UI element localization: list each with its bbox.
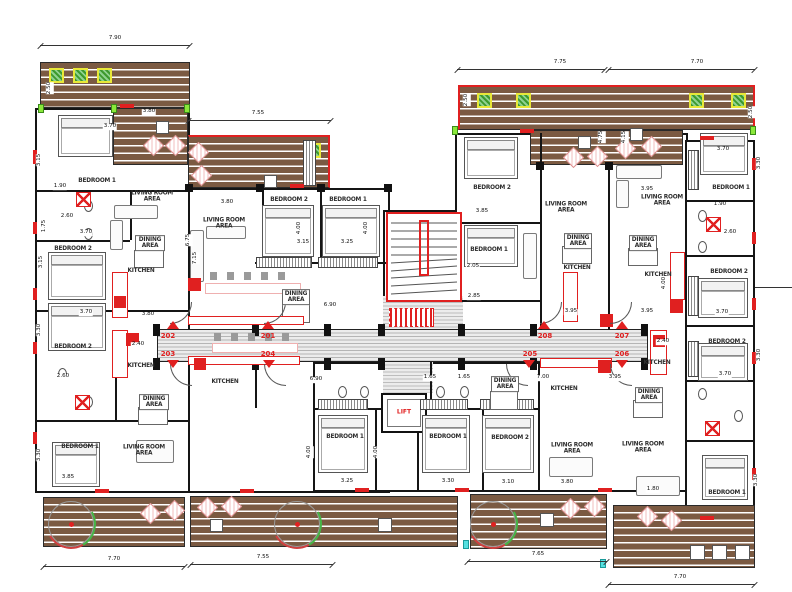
sofa bbox=[616, 165, 662, 179]
dim-label: 4.00 bbox=[306, 446, 314, 458]
bed bbox=[58, 115, 113, 157]
room-label-bedroom: BEDROOM 2 bbox=[491, 435, 529, 441]
dim-label: 3.10 bbox=[501, 480, 515, 486]
dim-label: 3.70 bbox=[718, 372, 732, 378]
dim-label: 4.15 bbox=[621, 131, 629, 143]
kitchen-sink bbox=[114, 296, 126, 308]
dim-label: 3.30 bbox=[36, 449, 44, 461]
dim-label: 2.50 bbox=[46, 82, 54, 94]
wardrobe bbox=[420, 399, 468, 410]
room-label-kitchen: KITCHEN bbox=[127, 363, 154, 369]
wardrobe bbox=[318, 399, 368, 410]
dim-label: 4.00 bbox=[296, 222, 304, 234]
extension-line bbox=[755, 287, 792, 288]
lift-label: LIFT bbox=[397, 409, 411, 416]
wall-pier bbox=[530, 324, 537, 336]
room-label-bedroom: BEDROOM 2 bbox=[270, 197, 308, 203]
wall-pier bbox=[256, 184, 264, 192]
staircase bbox=[386, 212, 462, 302]
kitchen-counter bbox=[670, 252, 685, 300]
dim-label: 2.60 bbox=[60, 214, 74, 220]
dim-label: 1.75 bbox=[41, 220, 49, 232]
window-marker bbox=[33, 432, 37, 444]
dim-label: 6.90 bbox=[323, 303, 337, 309]
dim-label: 7.70 bbox=[107, 557, 121, 563]
dim-label: 2.60 bbox=[56, 374, 70, 380]
room-label-bedroom: BEDROOM 2 bbox=[54, 344, 92, 350]
wall-pier bbox=[378, 358, 385, 370]
entry-marker bbox=[262, 321, 274, 329]
dim-label: 4.00 bbox=[373, 446, 381, 458]
room-label-kitchen: KITCHEN bbox=[211, 379, 238, 385]
planter-box bbox=[73, 68, 88, 83]
room-label-kitchen: KITCHEN bbox=[550, 386, 577, 392]
dim-label: 3.70 bbox=[103, 124, 117, 130]
dim-label: 3.85 bbox=[475, 209, 489, 215]
entry-marker bbox=[616, 321, 628, 329]
floor-plan: LIFT bbox=[0, 0, 792, 592]
sofa bbox=[549, 457, 593, 477]
room-label-living: LIVING ROOM AREA bbox=[121, 445, 167, 458]
planter-box bbox=[516, 93, 531, 108]
dim-label: 7.00 bbox=[536, 375, 550, 381]
dining-table bbox=[490, 391, 518, 410]
dim-label: 3.30 bbox=[756, 349, 764, 361]
staircase-steps bbox=[388, 214, 460, 300]
wall-pier bbox=[641, 324, 648, 336]
planter-box bbox=[49, 68, 64, 83]
room-label-bedroom: BEDROOM 2 bbox=[708, 339, 746, 345]
wall bbox=[455, 222, 540, 224]
dim-label: 6.90 bbox=[309, 377, 323, 383]
dim-label: 3.30 bbox=[753, 474, 761, 486]
deck-table bbox=[264, 175, 277, 188]
dim-label: 3.80 bbox=[141, 312, 155, 318]
dimension-line bbox=[608, 69, 755, 70]
planter-box bbox=[689, 93, 704, 108]
wall-pier bbox=[324, 358, 331, 370]
wardrobe bbox=[688, 150, 699, 190]
entry-marker bbox=[263, 360, 275, 368]
dim-label: 3.85 bbox=[61, 475, 75, 481]
window-marker bbox=[598, 488, 612, 492]
deck-table bbox=[690, 545, 705, 560]
kitchen-sink bbox=[194, 358, 206, 370]
dimension-line bbox=[40, 45, 190, 46]
dim-label: 4.00 bbox=[661, 277, 669, 289]
bed bbox=[318, 415, 368, 473]
wardrobe bbox=[256, 257, 312, 268]
wall bbox=[455, 300, 540, 302]
deck-table bbox=[210, 519, 223, 532]
sofa bbox=[114, 205, 158, 219]
window-marker bbox=[700, 136, 714, 140]
bed bbox=[422, 415, 470, 473]
room-label-living: LIVING ROOM AREA bbox=[199, 218, 249, 231]
window-marker bbox=[355, 488, 369, 492]
wall-pier bbox=[384, 184, 392, 192]
dim-label: 3.70 bbox=[79, 230, 93, 236]
dim-label: 3.15 bbox=[296, 240, 310, 246]
toilet bbox=[338, 386, 347, 398]
wall-pier bbox=[378, 324, 385, 336]
kitchen-sink bbox=[598, 360, 611, 373]
dim-label: 3.80 bbox=[560, 480, 574, 486]
unit-number: 205 bbox=[523, 350, 538, 358]
window-marker bbox=[33, 288, 37, 300]
unit-number: 201 bbox=[261, 332, 276, 340]
wardrobe bbox=[688, 276, 699, 316]
dim-label: 7.70 bbox=[673, 575, 687, 581]
dim-label: 3.30 bbox=[441, 479, 455, 485]
bed bbox=[464, 137, 518, 179]
kitchen-sink bbox=[670, 300, 683, 313]
wall-pier bbox=[605, 162, 613, 170]
room-label-bedroom: BEDROOM 1 bbox=[708, 490, 746, 496]
deck-table bbox=[578, 136, 591, 149]
shower-box bbox=[706, 217, 721, 232]
room-label-bedroom: BEDROOM 1 bbox=[326, 434, 364, 440]
dim-label: 7.75 bbox=[553, 60, 567, 66]
bar-stools bbox=[214, 333, 289, 341]
dim-label: 3.30 bbox=[756, 157, 764, 169]
tree bbox=[274, 501, 320, 547]
unit-number: 206 bbox=[615, 350, 630, 358]
dim-label: 3.70 bbox=[79, 310, 93, 316]
unit-number: 207 bbox=[615, 332, 630, 340]
dim-label: 2.50 bbox=[748, 106, 756, 118]
window-marker bbox=[700, 516, 714, 520]
deck-table bbox=[735, 545, 750, 560]
unit-number: 208 bbox=[538, 332, 553, 340]
dim-label: 3.95 bbox=[564, 309, 578, 315]
sofa bbox=[523, 233, 537, 279]
dim-label: 1.80 bbox=[646, 487, 660, 493]
room-label-dining: DINING AREA bbox=[635, 387, 663, 403]
dim-label: 3.95 bbox=[608, 375, 622, 381]
bar-stools bbox=[210, 272, 290, 280]
stair-entry-mat bbox=[389, 308, 434, 327]
deck-table bbox=[156, 121, 169, 134]
deck-marker bbox=[111, 104, 117, 113]
room-label-bedroom: BEDROOM 2 bbox=[54, 246, 92, 252]
window-marker bbox=[120, 104, 134, 108]
window-marker bbox=[752, 298, 756, 310]
dim-label: 4.75 bbox=[598, 131, 606, 143]
dim-label: 4.00 bbox=[363, 222, 371, 234]
dim-label: 3.80 bbox=[142, 109, 156, 115]
deck-table bbox=[712, 545, 727, 560]
wall-pier bbox=[153, 324, 160, 336]
unit-number: 202 bbox=[161, 332, 176, 340]
dim-label: 3.95 bbox=[640, 309, 654, 315]
dim-label: 3.70 bbox=[716, 147, 730, 153]
dim-label: 2.50 bbox=[463, 94, 471, 106]
shower-box bbox=[75, 395, 90, 410]
room-label-bedroom: BEDROOM 1 bbox=[470, 247, 508, 253]
deck-table bbox=[540, 513, 554, 527]
planter-box bbox=[97, 68, 112, 83]
room-label-bedroom: BEDROOM 1 bbox=[429, 434, 467, 440]
dim-label: 1.65 bbox=[423, 375, 437, 381]
deck-marker bbox=[38, 104, 44, 113]
dim-label: 7.70 bbox=[690, 60, 704, 66]
dimension-line bbox=[188, 120, 331, 121]
bed bbox=[262, 205, 314, 257]
bed bbox=[48, 252, 106, 300]
room-label-kitchen: KITCHEN bbox=[563, 265, 590, 271]
entry-marker bbox=[616, 360, 628, 368]
tree bbox=[48, 501, 94, 547]
room-label-bedroom: BEDROOM 2 bbox=[710, 269, 748, 275]
room-label-dining: DINING AREA bbox=[135, 235, 165, 251]
window-marker bbox=[520, 129, 534, 133]
dim-label: 3.80 bbox=[220, 200, 234, 206]
dim-label: 2.40 bbox=[656, 339, 670, 345]
kitchen-island bbox=[212, 343, 298, 353]
dim-label: 7.15 bbox=[192, 252, 200, 264]
deck-table bbox=[630, 128, 643, 141]
dim-label: 7.55 bbox=[251, 111, 265, 117]
toilet bbox=[734, 410, 743, 422]
kitchen-counter bbox=[112, 272, 128, 318]
deck-bottom-right bbox=[613, 505, 755, 568]
window-marker bbox=[95, 489, 109, 493]
wardrobe bbox=[303, 140, 316, 186]
dimension-line bbox=[457, 69, 605, 70]
bed bbox=[482, 415, 534, 473]
wall-pier bbox=[458, 358, 465, 370]
window-marker bbox=[752, 232, 756, 244]
unit-number: 203 bbox=[161, 350, 176, 358]
sofa bbox=[110, 220, 123, 250]
room-label-kitchen: KITCHEN bbox=[644, 272, 671, 278]
room-label-bedroom: BEDROOM 2 bbox=[473, 185, 511, 191]
room-label-dining: DINING AREA bbox=[564, 233, 592, 249]
room-label-living: LIVING ROOM AREA bbox=[639, 195, 685, 208]
dining-table bbox=[134, 250, 164, 268]
bed bbox=[322, 205, 380, 257]
room-label-bedroom: BEDROOM 1 bbox=[329, 197, 367, 203]
toilet bbox=[360, 386, 369, 398]
dimension-line bbox=[190, 564, 333, 565]
toilet bbox=[698, 241, 707, 253]
room-label-dining: DINING AREA bbox=[282, 289, 310, 305]
wall-pier bbox=[458, 324, 465, 336]
unit-number: 204 bbox=[261, 350, 276, 358]
planter-box bbox=[731, 93, 746, 108]
window-marker bbox=[240, 489, 254, 493]
entry-marker bbox=[167, 321, 179, 329]
dim-label: 3.95 bbox=[640, 187, 654, 193]
entry-marker bbox=[538, 321, 550, 329]
wall-pier bbox=[185, 184, 193, 192]
entry-marker bbox=[167, 360, 179, 368]
deck-table bbox=[378, 518, 392, 532]
shower-box bbox=[76, 192, 91, 207]
dim-label: 1.90 bbox=[53, 184, 67, 190]
room-label-living: LIVING ROOM AREA bbox=[620, 442, 666, 455]
room-label-dining: DINING AREA bbox=[139, 394, 169, 410]
deck-marker bbox=[750, 126, 756, 135]
dim-label: 2.85 bbox=[467, 294, 481, 300]
wardrobe bbox=[688, 341, 699, 377]
dim-label: 3.70 bbox=[715, 310, 729, 316]
wall-pier bbox=[324, 324, 331, 336]
dim-label: 1.65 bbox=[457, 375, 471, 381]
wall bbox=[685, 255, 755, 257]
window-marker bbox=[33, 222, 37, 234]
dim-label: 2.05 bbox=[466, 264, 480, 270]
dim-label: 3.25 bbox=[340, 479, 354, 485]
planter-box bbox=[477, 93, 492, 108]
window-marker bbox=[290, 184, 304, 188]
wall-pier bbox=[317, 184, 325, 192]
window-marker bbox=[455, 488, 469, 492]
kitchen-counter bbox=[188, 316, 304, 325]
deck-marker bbox=[184, 104, 190, 113]
dim-label: 1.90 bbox=[713, 202, 727, 208]
deck-top-right bbox=[458, 85, 755, 130]
deck-marker bbox=[463, 540, 469, 549]
wall-pier bbox=[536, 162, 544, 170]
room-label-living: LIVING ROOM AREA bbox=[549, 443, 595, 456]
wall bbox=[685, 440, 755, 442]
deck-marker bbox=[452, 126, 458, 135]
shower-box bbox=[705, 421, 720, 436]
window-marker bbox=[33, 342, 37, 354]
wardrobe bbox=[318, 257, 378, 268]
dimension-line bbox=[43, 566, 185, 567]
dim-label: 7.90 bbox=[108, 36, 122, 42]
room-label-living: LIVING ROOM AREA bbox=[543, 202, 589, 215]
room-label-bedroom: BEDROOM 1 bbox=[78, 178, 116, 184]
dim-label: 3.25 bbox=[340, 240, 354, 246]
room-label-kitchen: KITCHEN bbox=[643, 360, 670, 366]
dim-label: 3.15 bbox=[36, 154, 44, 166]
sofa bbox=[616, 180, 629, 208]
toilet bbox=[436, 386, 445, 398]
dimension-line bbox=[608, 584, 755, 585]
toilet bbox=[460, 386, 469, 398]
wall bbox=[685, 325, 755, 327]
dim-label: 6.75 bbox=[185, 234, 193, 246]
entry-marker bbox=[523, 360, 535, 368]
dim-label: 2.60 bbox=[723, 230, 737, 236]
room-label-bedroom: BEDROOM 1 bbox=[61, 444, 99, 450]
dim-label: 3.30 bbox=[36, 324, 44, 336]
kitchen-sink bbox=[188, 278, 201, 291]
room-label-dining: DINING AREA bbox=[629, 235, 657, 251]
dimension-line bbox=[467, 561, 607, 562]
dim-label: 3.15 bbox=[38, 256, 46, 268]
room-label-kitchen: KITCHEN bbox=[127, 268, 154, 274]
toilet bbox=[698, 388, 707, 400]
room-label-dining: DINING AREA bbox=[491, 376, 519, 392]
room-label-bedroom: BEDROOM 1 bbox=[712, 185, 750, 191]
dim-label: 2.40 bbox=[131, 342, 145, 348]
dim-label: 7.65 bbox=[531, 552, 545, 558]
tree bbox=[470, 501, 516, 547]
dim-label: 7.55 bbox=[256, 555, 270, 561]
room-label-living: LIVING ROOM AREA bbox=[129, 191, 175, 204]
